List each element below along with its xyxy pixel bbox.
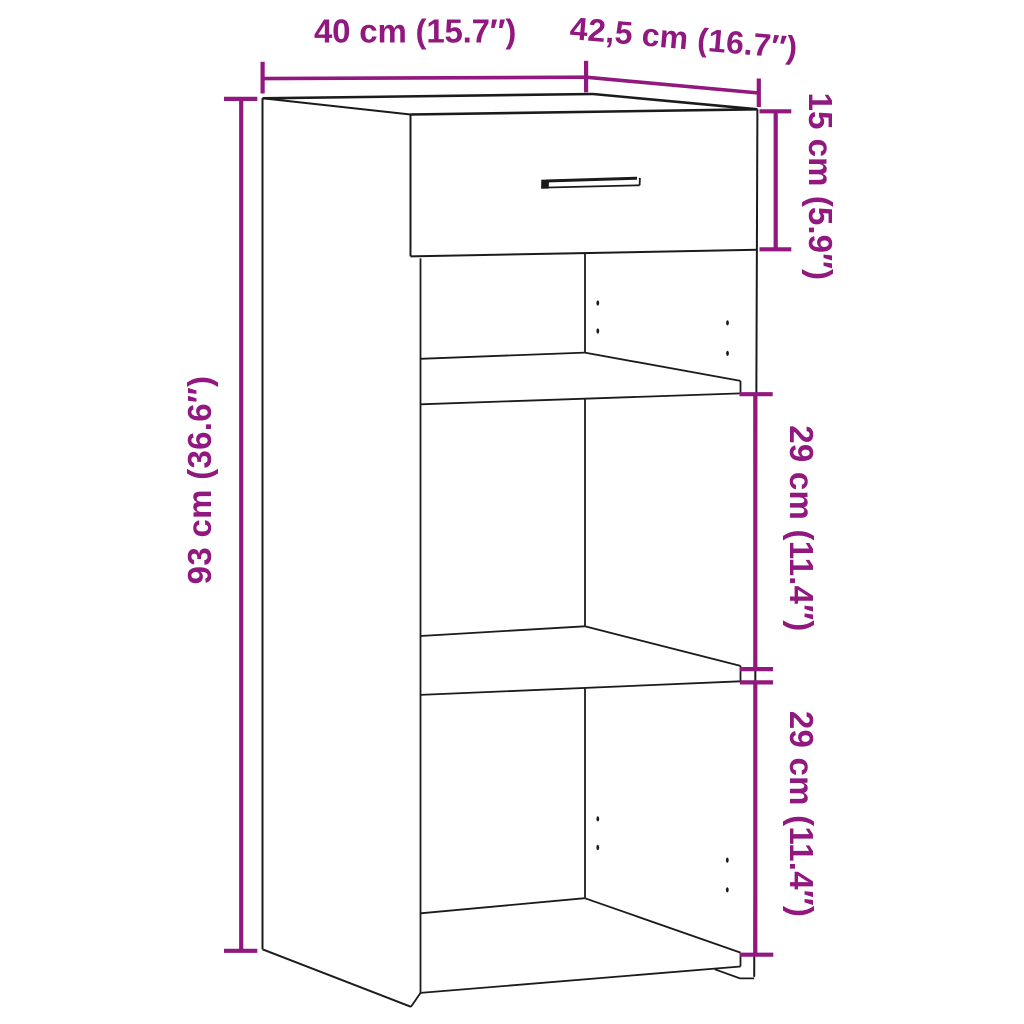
svg-text:29 cm (11.4″): 29 cm (11.4″) [783,425,820,631]
svg-text:42,5 cm (16.7″): 42,5 cm (16.7″) [568,10,799,66]
svg-text:15 cm (5.9″): 15 cm (5.9″) [802,92,839,280]
svg-text:29 cm (11.4″): 29 cm (11.4″) [783,711,820,917]
svg-text:40 cm (15.7″): 40 cm (15.7″) [314,13,516,50]
svg-text:93 cm (36.6″): 93 cm (36.6″) [181,376,218,585]
